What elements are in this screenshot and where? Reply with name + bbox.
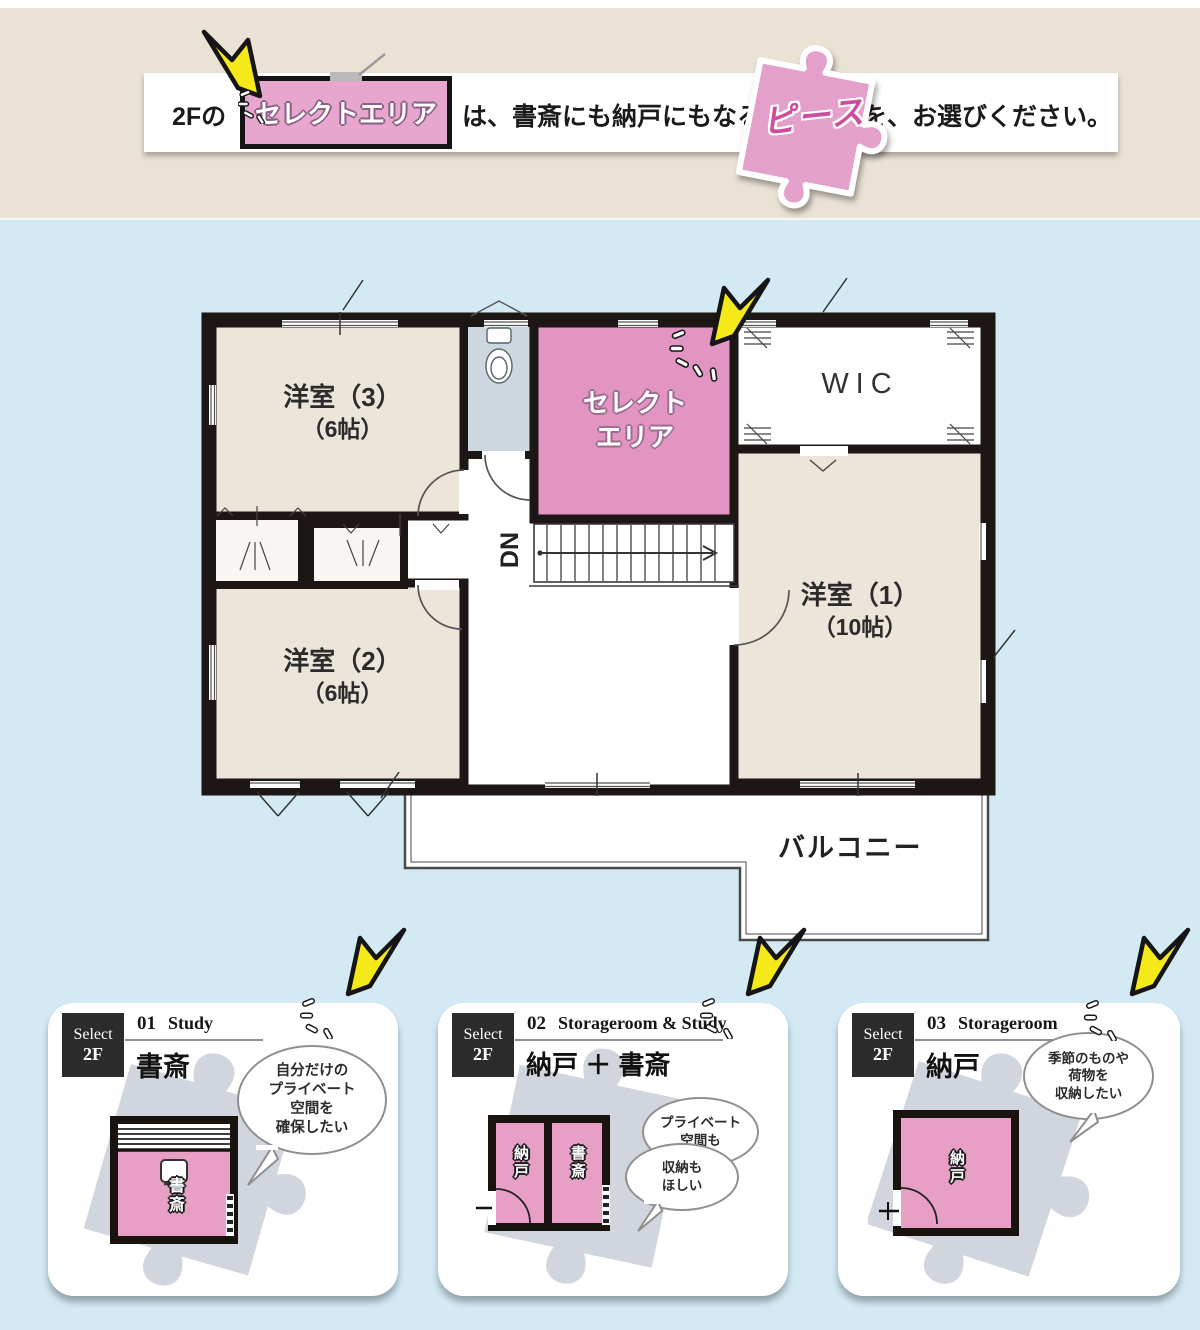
bubble-line: プライベート (269, 1081, 356, 1100)
floor-label: 2F (83, 1044, 103, 1065)
bubble-line: 確保したい (276, 1119, 349, 1138)
option-number: 02 (527, 1013, 546, 1034)
miniplan-room-label: 納戸 (510, 1145, 531, 1181)
header-underline (515, 1039, 723, 1041)
floor-label: 2F (873, 1044, 893, 1065)
option-number: 01 (137, 1013, 156, 1034)
select-2f-badge: Select 2F (452, 1013, 514, 1077)
miniplan-room-label: 書斎 (567, 1145, 588, 1181)
bubble-line: 自分だけの (276, 1062, 349, 1081)
bubble-line: プライベート (660, 1114, 741, 1132)
bubble-line: 収納したい (1055, 1085, 1123, 1103)
miniplan-room-label: 納戸 (946, 1150, 967, 1186)
room-label-select-area: セレクト エリア (545, 386, 725, 455)
option-title-jp: 書斎 (136, 1045, 190, 1084)
balcony-label: バルコニー (778, 826, 922, 865)
yellow-arrow-icon (740, 920, 812, 1004)
select-2f-badge: Select 2F (62, 1013, 124, 1077)
option-card-storageroom[interactable]: Select 2F 03 Storageroom 納戸 納戸 季節のものや 荷物… (838, 1003, 1180, 1296)
balcony-outline (405, 790, 988, 940)
miniplan-room-label: 書斎 (162, 1177, 186, 1215)
option-header: 01 Study (137, 1013, 213, 1035)
floor-label: 2F (473, 1044, 493, 1065)
room-label-yoshitsu2: 洋室（2） （6帖） (250, 644, 435, 709)
speech-bubble: 季節のものや 荷物を 収納したい (1023, 1032, 1154, 1120)
header-underline (125, 1039, 263, 1041)
option-number: 03 (927, 1013, 946, 1034)
select-label: Select (463, 1026, 502, 1044)
option-header: 03 Storageroom (927, 1013, 1058, 1035)
closet-middle (310, 524, 404, 585)
option-title-en: Study (168, 1013, 213, 1033)
miniplan-storage-study (476, 1115, 616, 1237)
yellow-arrow-icon (1124, 920, 1196, 1004)
sparkle-icon (300, 993, 360, 1039)
option-title-en: Storageroom (958, 1013, 1058, 1033)
stairs (529, 524, 739, 586)
sparkle-icon (700, 993, 760, 1039)
banner-middle-text: は、書斎にも納戸にもなる (462, 97, 762, 131)
bubble-line: 収納も (662, 1159, 703, 1177)
yellow-arrow-icon (340, 920, 412, 1004)
option-header: 02 Storageroom & Study (527, 1013, 727, 1035)
option-title-jp: 納戸 ＋ 書斎 (526, 1045, 670, 1082)
chip-tab-mark (325, 48, 405, 88)
bubble-tail (634, 1199, 664, 1233)
bubble-line: 季節のものや (1048, 1050, 1129, 1068)
sparkle-icon (1084, 995, 1144, 1041)
select-2f-badge: Select 2F (852, 1013, 914, 1077)
select-label: Select (863, 1026, 902, 1044)
top-white-strip (0, 0, 1200, 8)
banner: 2Fの セレクトエリア は、書斎にも納戸にもなる を、お選びください。 ピース (0, 8, 1200, 220)
option-card-study[interactable]: Select 2F 01 Study 書斎 書斎 自分だけの プライベート 空間… (48, 1003, 398, 1296)
bubble-tail (244, 1145, 280, 1187)
speech-bubble: 自分だけの プライベート 空間を 確保したい (237, 1045, 387, 1155)
closet-left (212, 516, 302, 585)
option-title-jp: 納戸 (926, 1045, 980, 1084)
bubble-line: 荷物を (1068, 1067, 1109, 1085)
option-card-storageroom-study[interactable]: Select 2F 02 Storageroom & Study 納戸 ＋ 書斎… (438, 1003, 788, 1296)
stairs-dn-label: DN (496, 522, 524, 578)
bubble-line: 空間を (290, 1100, 334, 1119)
bubble-tail (1066, 1108, 1100, 1144)
room-label-yoshitsu3: 洋室（3） （6帖） (250, 380, 435, 445)
select-label: Select (73, 1026, 112, 1044)
sparkle-icon (238, 80, 294, 124)
bubble-line: ほしい (662, 1177, 703, 1195)
room-label-yoshitsu1: 洋室（1） （10帖） (765, 578, 955, 643)
room-label-wic: WIC (795, 368, 925, 401)
